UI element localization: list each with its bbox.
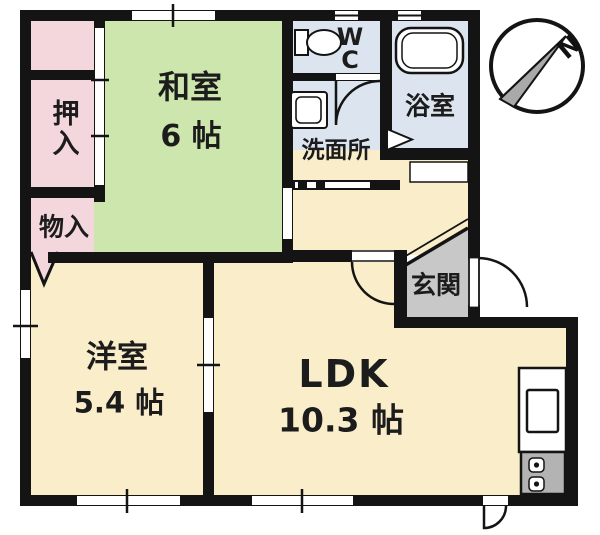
ldk-size-label: 10.3 帖 bbox=[278, 404, 404, 437]
bathtub-icon bbox=[396, 28, 463, 73]
kitchen-counter bbox=[519, 368, 566, 494]
kitchen-backdoor-swing-icon bbox=[484, 506, 506, 528]
wall-right-lower bbox=[566, 317, 578, 506]
wall-left bbox=[20, 10, 31, 506]
senmenjo-label: 洗面所 bbox=[302, 140, 371, 163]
bath-door-threshold bbox=[410, 162, 468, 182]
wc-door-opening bbox=[336, 74, 380, 80]
wall-bath-bottom bbox=[392, 148, 468, 160]
senmenjo-door-dash-2 bbox=[316, 182, 325, 188]
toilet-icon bbox=[295, 30, 341, 55]
wall-jog-horizontal bbox=[398, 317, 578, 328]
yoshitsu-room-floor bbox=[25, 258, 210, 500]
bathroom-label: 浴室 bbox=[405, 94, 455, 119]
ldk-room-label: LDK bbox=[298, 355, 389, 393]
kitchen-backdoor-opening bbox=[483, 496, 508, 505]
wall-washitsu-bottom bbox=[94, 252, 293, 263]
washing-machine-icon bbox=[291, 92, 327, 128]
wc-label-c: C bbox=[341, 48, 359, 72]
yoshitsu-left-window bbox=[21, 290, 30, 358]
oshiire-closet-label: 押入 bbox=[51, 100, 81, 160]
senmenjo-door-dash-1 bbox=[298, 182, 307, 188]
yoshitsu-room-label: 洋室 bbox=[86, 343, 148, 374]
ldk-hall-door-opening bbox=[352, 250, 394, 262]
yoshitsu-size-label: 5.4 帖 bbox=[74, 389, 164, 418]
genkan-label: 玄関 bbox=[411, 273, 461, 298]
entrance-door-leaf bbox=[469, 258, 479, 308]
wall-genkan-left bbox=[394, 250, 407, 328]
floorplan-graphics bbox=[0, 0, 600, 535]
floorplan: 和室 6 帖 押入 物入 洋室 5.4 帖 LDK 10.3 帖 玄関 洗面所 … bbox=[0, 0, 600, 535]
washitsu-room-label: 和室 bbox=[158, 71, 222, 103]
wall-closet-divider-1 bbox=[31, 70, 94, 80]
wall-right-upper bbox=[468, 10, 480, 260]
upper-closet-floor bbox=[25, 15, 100, 75]
washitsu-entry-opening bbox=[283, 188, 292, 239]
monoire-closet-label: 物入 bbox=[39, 215, 89, 240]
yoshitsu-bottom-window bbox=[77, 496, 180, 505]
wall-closet-divider-2 bbox=[31, 187, 94, 198]
wall-hallway-bottom bbox=[282, 250, 352, 262]
oshiire-fusuma-doors bbox=[95, 28, 104, 185]
kitchen-sink-icon bbox=[527, 390, 558, 432]
washitsu-size-label: 6 帖 bbox=[160, 122, 221, 152]
entrance-door-swing-icon bbox=[478, 258, 527, 307]
